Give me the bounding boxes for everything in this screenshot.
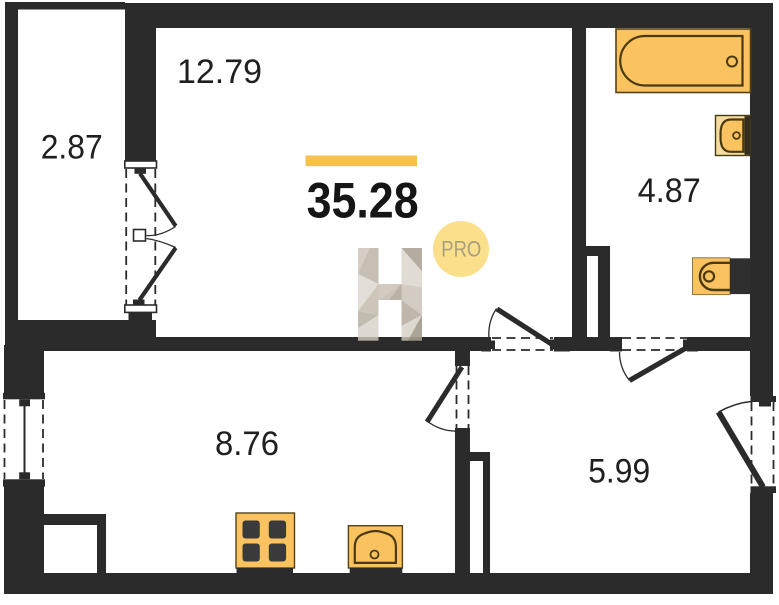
svg-text:4.87: 4.87 — [638, 172, 701, 210]
svg-text:35.28: 35.28 — [307, 173, 419, 229]
svg-text:5.99: 5.99 — [588, 453, 650, 491]
svg-text:2.87: 2.87 — [41, 129, 103, 167]
svg-text:PRO: PRO — [441, 237, 481, 262]
svg-text:8.76: 8.76 — [215, 425, 279, 463]
svg-text:12.79: 12.79 — [177, 53, 262, 91]
